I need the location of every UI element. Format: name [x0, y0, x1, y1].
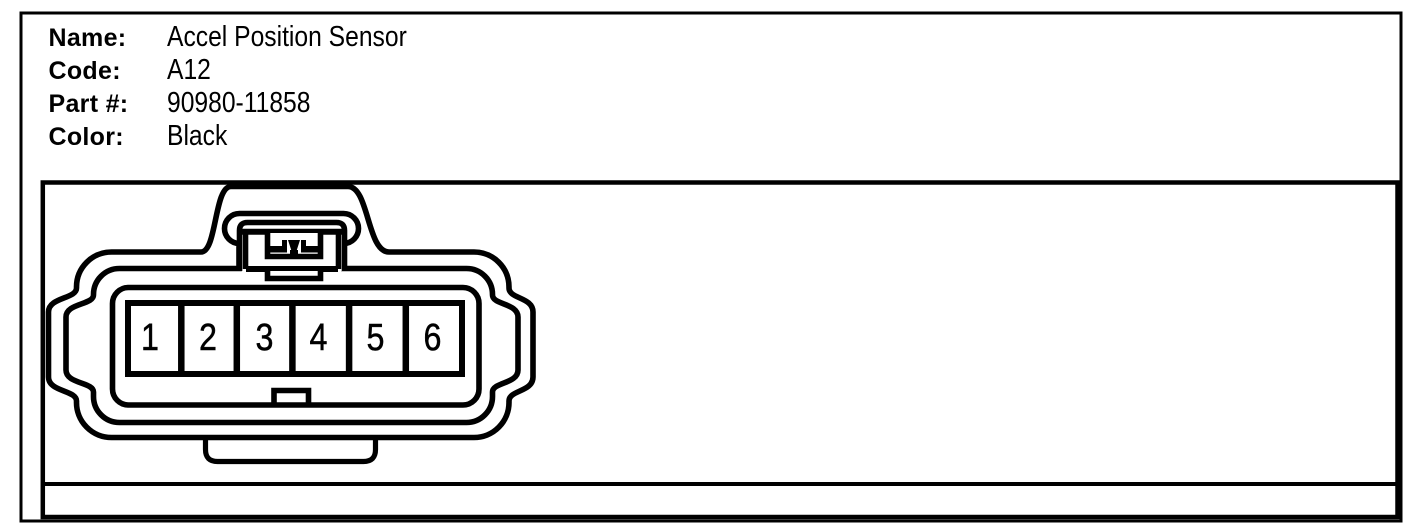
svg-text:3: 3: [256, 317, 274, 359]
svg-text:6: 6: [424, 317, 442, 359]
svg-text:4: 4: [310, 317, 328, 359]
svg-text:2: 2: [199, 317, 217, 359]
svg-text:1: 1: [141, 317, 159, 359]
svg-text:5: 5: [367, 317, 385, 359]
